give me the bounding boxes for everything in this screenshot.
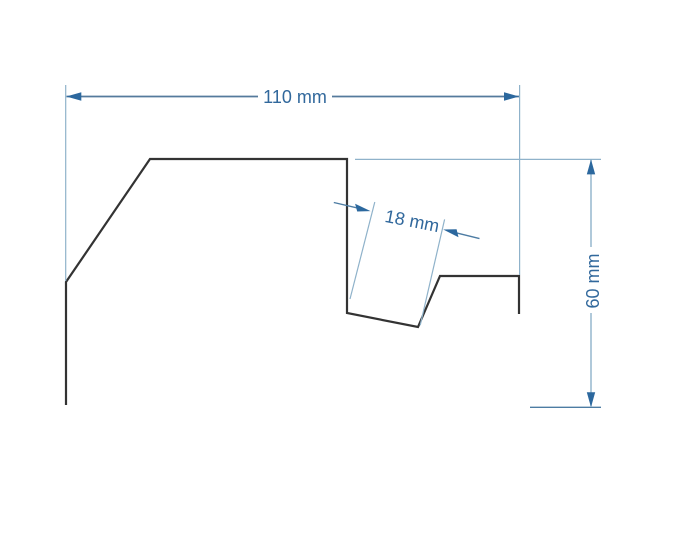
svg-text:110 mm: 110 mm	[263, 87, 327, 107]
svg-text:60 mm: 60 mm	[583, 253, 603, 308]
svg-text:18 mm: 18 mm	[383, 206, 441, 236]
